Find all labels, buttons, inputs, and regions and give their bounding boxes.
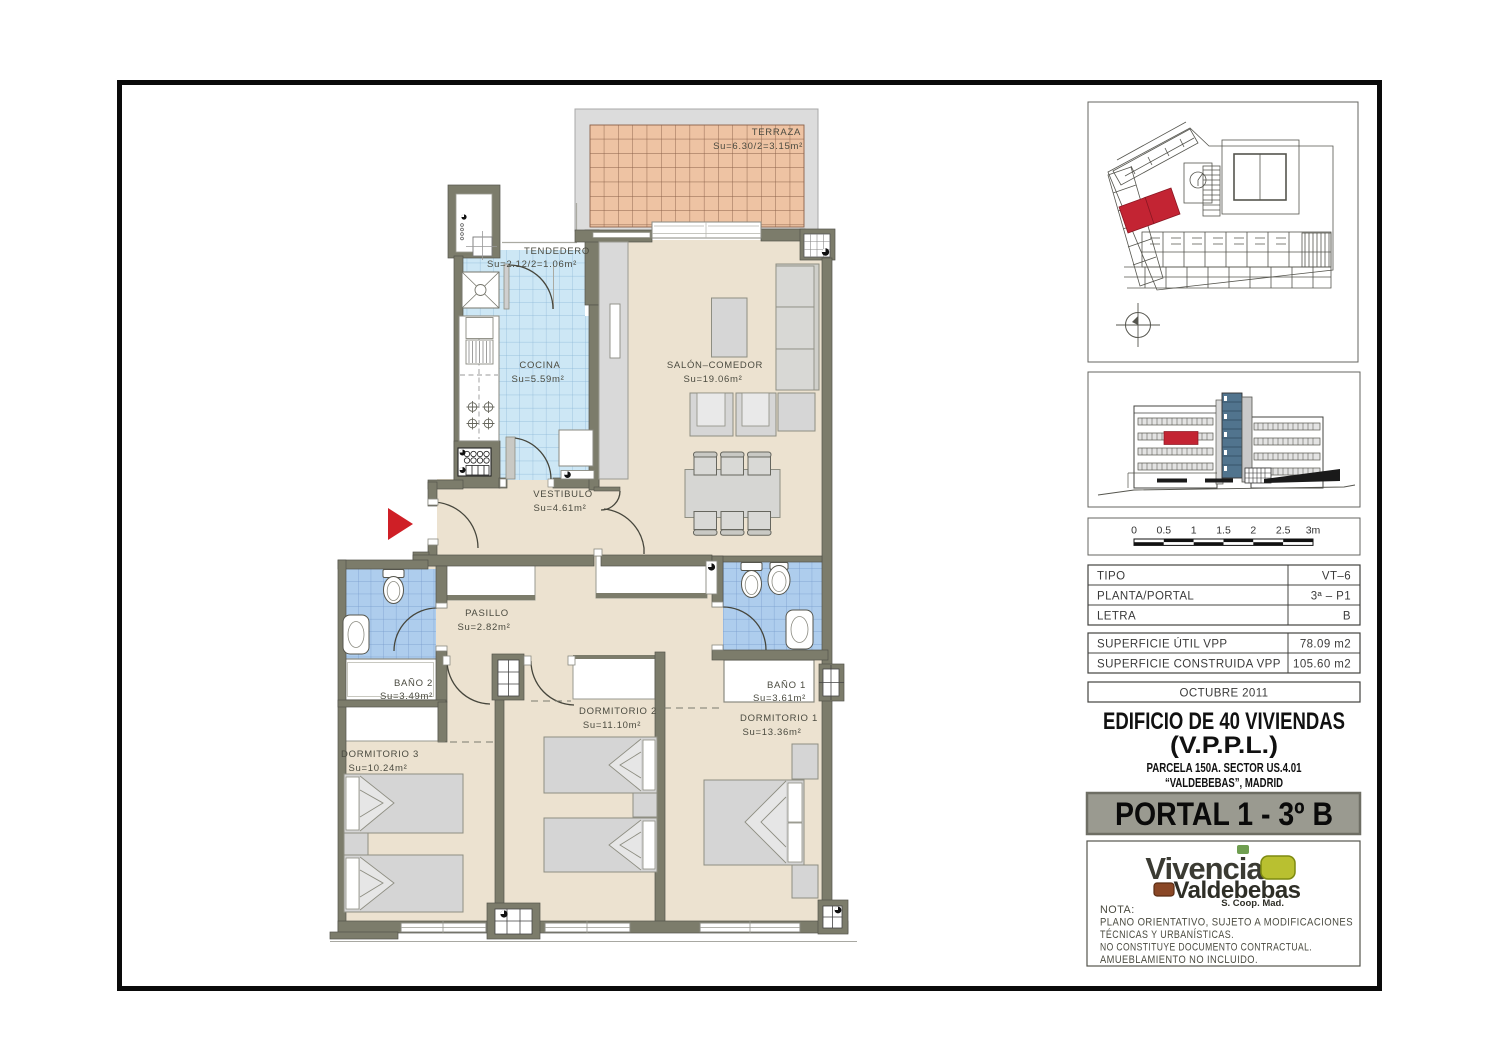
svg-text:Su=11.10m²: Su=11.10m² <box>583 720 641 731</box>
svg-text:3m: 3m <box>1306 525 1321 537</box>
svg-text:EDIFICIO DE 40 VIVIENDAS: EDIFICIO DE 40 VIVIENDAS <box>1103 708 1345 735</box>
svg-text:LETRA: LETRA <box>1097 611 1136 623</box>
svg-text:PASILLO: PASILLO <box>465 608 509 619</box>
svg-text:Su=6.30/2=3.15m²: Su=6.30/2=3.15m² <box>713 141 803 152</box>
svg-text:Su=3.61m²: Su=3.61m² <box>753 693 806 704</box>
svg-text:2.5: 2.5 <box>1276 525 1291 537</box>
svg-text:1.5: 1.5 <box>1216 525 1231 537</box>
svg-text:TENDEDERO: TENDEDERO <box>524 246 590 257</box>
svg-text:TIPO: TIPO <box>1097 571 1125 583</box>
svg-text:AMUEBLAMIENTO NO INCLUIDO.: AMUEBLAMIENTO NO INCLUIDO. <box>1100 954 1258 966</box>
svg-text:OCTUBRE 2011: OCTUBRE 2011 <box>1180 688 1269 700</box>
svg-text:COCINA: COCINA <box>519 360 560 371</box>
svg-text:Su=2.82m²: Su=2.82m² <box>457 622 510 633</box>
svg-text:S. Coop. Mad.: S. Coop. Mad. <box>1221 898 1284 909</box>
svg-text:SUPERFICIE CONSTRUIDA VPP: SUPERFICIE CONSTRUIDA VPP <box>1097 659 1281 671</box>
svg-text:78.09 m2: 78.09 m2 <box>1300 639 1351 651</box>
svg-text:(V.P.P.L.): (V.P.P.L.) <box>1170 732 1278 759</box>
svg-text:B: B <box>1343 611 1351 623</box>
svg-text:NOTA:: NOTA: <box>1100 904 1135 916</box>
svg-text:TERRAZA: TERRAZA <box>752 127 801 138</box>
svg-text:PORTAL 1 - 3º B: PORTAL 1 - 3º B <box>1115 796 1333 832</box>
svg-text:Su=19.06m²: Su=19.06m² <box>683 374 742 385</box>
svg-text:SUPERFICIE ÚTIL VPP: SUPERFICIE ÚTIL VPP <box>1097 638 1228 651</box>
svg-text:DORMITORIO 1: DORMITORIO 1 <box>740 713 818 724</box>
svg-text:BAÑO 2: BAÑO 2 <box>394 678 433 689</box>
svg-text:0.5: 0.5 <box>1156 525 1171 537</box>
svg-text:105.60 m2: 105.60 m2 <box>1293 659 1351 671</box>
svg-text:DORMITORIO 2: DORMITORIO 2 <box>579 706 657 717</box>
svg-text:Su=5.59m²: Su=5.59m² <box>511 374 564 385</box>
svg-text:Su=4.61m²: Su=4.61m² <box>533 503 586 514</box>
svg-text:“VALDEBEBAS”, MADRID: “VALDEBEBAS”, MADRID <box>1165 776 1283 790</box>
svg-text:NO CONSTITUYE DOCUMENTO CONTRA: NO CONSTITUYE DOCUMENTO CONTRACTUAL. <box>1100 942 1312 954</box>
svg-text:VESTIBULO: VESTIBULO <box>533 489 593 500</box>
svg-text:Su=13.36m²: Su=13.36m² <box>742 727 801 738</box>
svg-text:DORMITORIO 3: DORMITORIO 3 <box>341 749 419 760</box>
svg-text:VT–6: VT–6 <box>1322 571 1351 583</box>
svg-text:SALÓN–COMEDOR: SALÓN–COMEDOR <box>667 360 763 371</box>
svg-text:Su=2.12/2=1.06m²: Su=2.12/2=1.06m² <box>487 259 577 270</box>
svg-text:1: 1 <box>1191 525 1197 537</box>
svg-text:BAÑO 1: BAÑO 1 <box>767 680 806 691</box>
svg-text:TÉCNICAS Y URBANÍSTICAS.: TÉCNICAS Y URBANÍSTICAS. <box>1100 928 1234 941</box>
svg-text:0: 0 <box>1131 525 1137 537</box>
svg-text:PARCELA 150A. SECTOR US.4.01: PARCELA 150A. SECTOR US.4.01 <box>1147 761 1302 775</box>
svg-text:PLANTA/PORTAL: PLANTA/PORTAL <box>1097 591 1194 603</box>
svg-text:Su=10.24m²: Su=10.24m² <box>348 763 407 774</box>
svg-text:PLANO ORIENTATIVO, SUJETO A MO: PLANO ORIENTATIVO, SUJETO A MODIFICACION… <box>1100 917 1353 929</box>
svg-text:3ª – P1: 3ª – P1 <box>1311 591 1351 603</box>
svg-text:Su=3.49m²: Su=3.49m² <box>380 691 433 702</box>
svg-text:2: 2 <box>1250 525 1256 537</box>
